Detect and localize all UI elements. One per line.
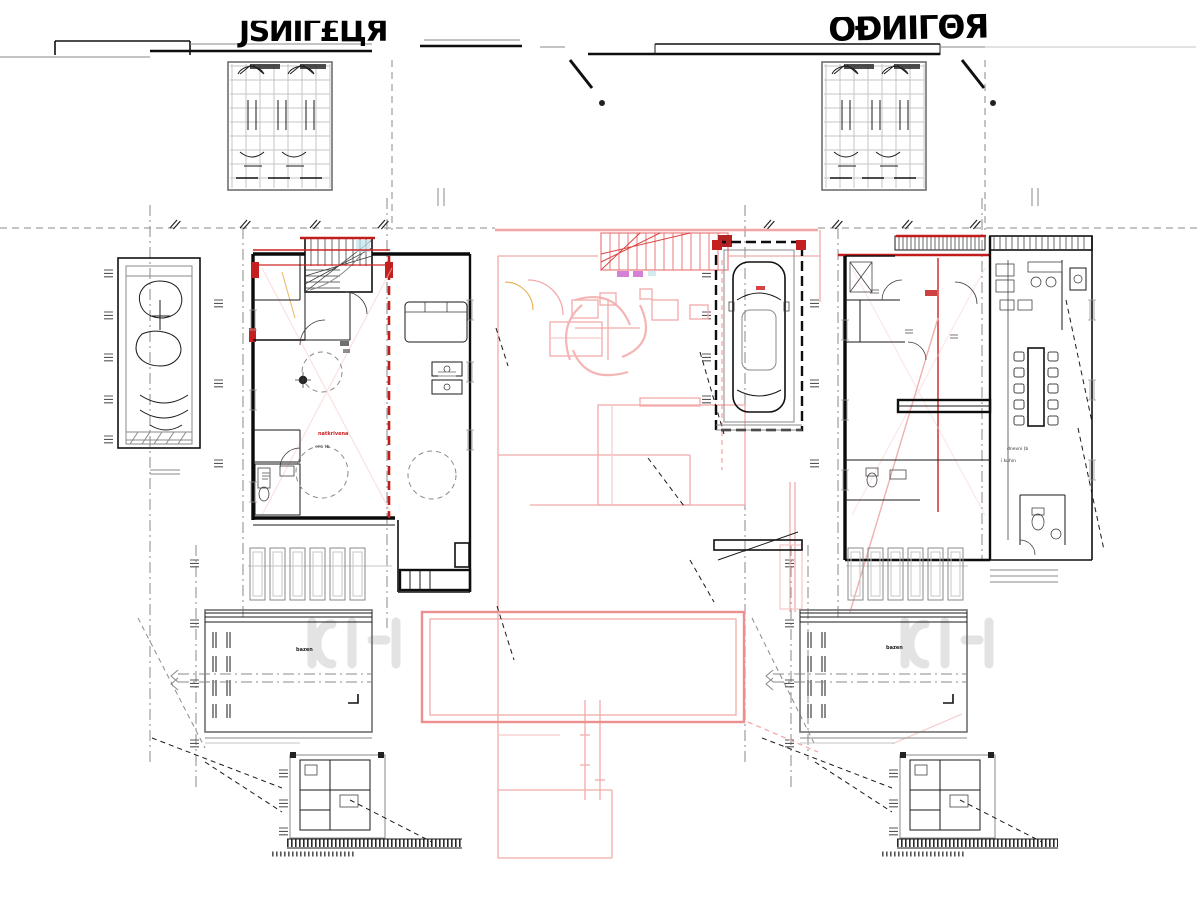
left-terrace-label: natkrivena bbox=[318, 432, 348, 437]
right-pool-label: bazen bbox=[886, 646, 903, 651]
right-garage-grid bbox=[822, 62, 926, 190]
left-main-house bbox=[249, 238, 474, 592]
left-bottom-structure bbox=[152, 738, 462, 854]
right-bottom-structure bbox=[762, 738, 1058, 854]
left-pergola-row bbox=[248, 548, 392, 600]
right-main-house bbox=[838, 236, 990, 612]
left-pool-label: bazen bbox=[296, 648, 313, 653]
floorplan-canvas: ЈЅЙІΓ£ЦЯ ÒÐЍЇΓΘЯ natkrivena eno tb bazen… bbox=[0, 0, 1200, 900]
left-pool-bottom bbox=[171, 610, 372, 743]
right-kitchen-label: i kuhin bbox=[1001, 459, 1016, 464]
left-garage-grid bbox=[228, 62, 332, 190]
right-carport-bay bbox=[712, 240, 806, 560]
right-pool-bottom bbox=[766, 610, 967, 743]
right-pergola-row bbox=[846, 548, 968, 600]
right-gray-watermark bbox=[905, 622, 989, 664]
left-terrace-sublabel: eno tb bbox=[315, 445, 329, 450]
right-living-label: dnevni (b bbox=[1007, 447, 1028, 452]
left-gray-watermark bbox=[312, 622, 396, 664]
right-wing bbox=[990, 236, 1096, 582]
left-water-feature bbox=[118, 258, 200, 474]
top-boundary-lines bbox=[0, 40, 1196, 230]
